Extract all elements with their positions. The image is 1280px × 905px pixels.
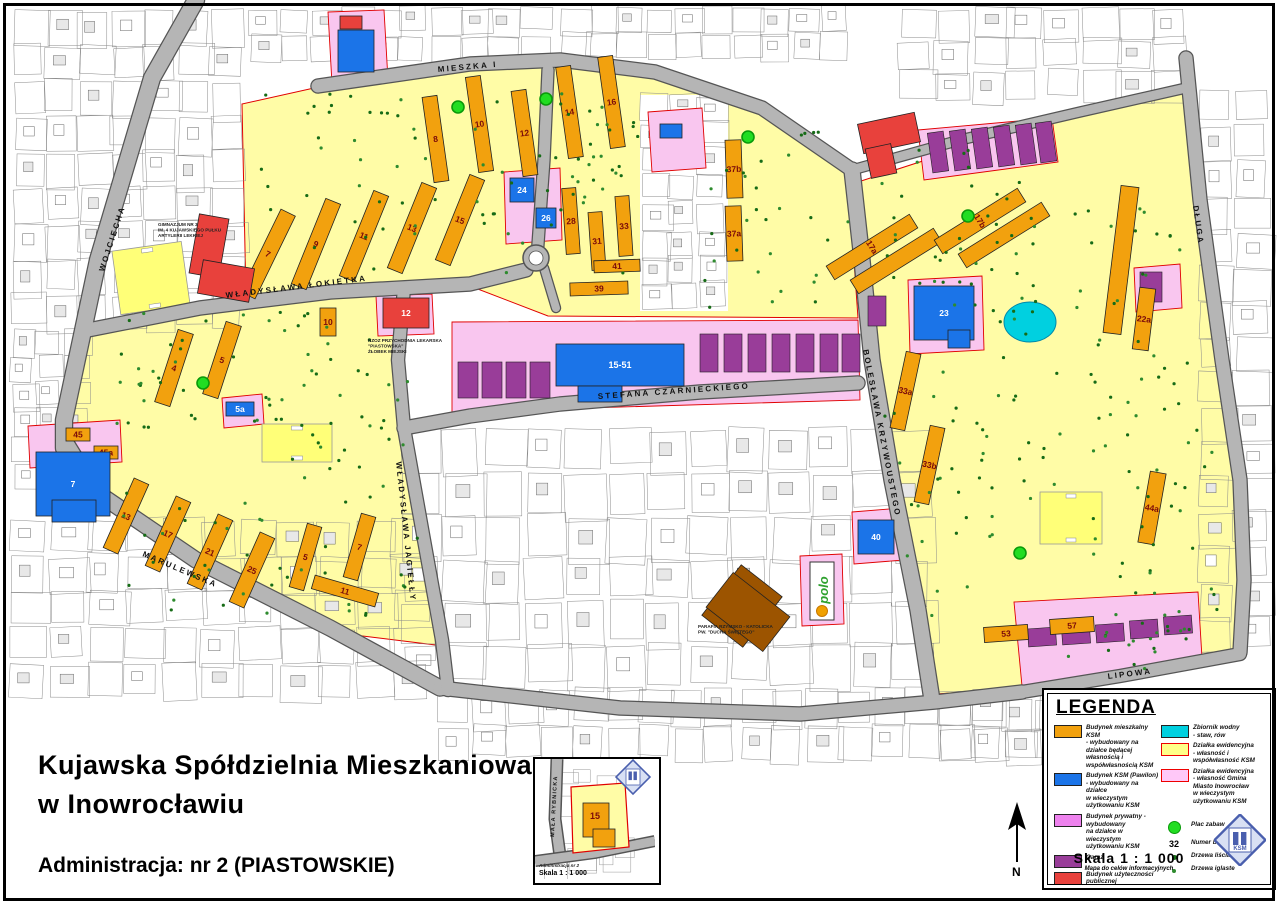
building-number: 22a: [1136, 313, 1152, 325]
tree-dot: [203, 564, 206, 567]
tree-dot: [1127, 643, 1130, 646]
tree-dot: [328, 467, 331, 470]
tree-dot: [493, 212, 496, 215]
tree-dot: [936, 590, 939, 593]
tree-dot: [225, 527, 228, 530]
tree-dot: [242, 313, 245, 316]
building-number: 31: [592, 236, 602, 247]
tree-dot: [1134, 229, 1137, 232]
tree-dot: [1149, 637, 1152, 640]
tree-dot: [329, 358, 332, 361]
tree-dot: [606, 123, 609, 126]
scale-text: Skala 1 : 1 000: [1048, 850, 1210, 866]
tree-dot: [713, 259, 716, 262]
tree-dot: [975, 422, 978, 425]
tree-dot: [600, 106, 603, 109]
tree-dot: [182, 389, 185, 392]
garage-block: [772, 334, 790, 372]
building-number: 28: [566, 216, 576, 227]
tree-dot: [880, 182, 883, 185]
tree-dot: [1128, 470, 1131, 473]
tree-dot: [268, 403, 271, 406]
tree-dot: [178, 507, 181, 510]
tree-dot: [414, 224, 417, 227]
tree-dot: [147, 426, 150, 429]
tree-dot: [319, 445, 322, 448]
tree-dot: [1097, 417, 1100, 420]
tree-dot: [1144, 274, 1147, 277]
tree-dot: [755, 208, 758, 211]
tree-dot: [898, 461, 901, 464]
building-24: 24: [510, 178, 534, 202]
tree-dot: [1055, 372, 1058, 375]
tree-dot: [703, 279, 706, 282]
tree-dot: [787, 154, 790, 157]
garage-block: [1129, 619, 1158, 639]
tree-dot: [957, 491, 960, 494]
tree-dot: [939, 259, 942, 262]
tree-dot: [985, 435, 988, 438]
tree-dot: [183, 519, 186, 522]
tree-dot: [636, 135, 639, 138]
tree-dot: [958, 237, 961, 240]
tree-dot: [127, 421, 130, 424]
tree-dot: [122, 514, 125, 517]
tree-dot: [1067, 655, 1070, 658]
tree-dot: [1092, 517, 1095, 520]
tree-dot: [967, 149, 970, 152]
tree-dot: [416, 537, 419, 540]
tree-dot: [955, 407, 958, 410]
tree-dot: [814, 300, 817, 303]
legend-item: Działka ewidencyjna - własność i współwł…: [1159, 742, 1266, 765]
tree-dot: [970, 184, 973, 187]
building-15-51: 15-51: [556, 344, 684, 386]
tree-dot: [1074, 212, 1077, 215]
tree-dot: [324, 571, 327, 574]
tree-dot: [1092, 553, 1095, 556]
tree-dot: [996, 241, 999, 244]
tree-dot: [991, 533, 994, 536]
tree-dot: [906, 554, 909, 557]
tree-dot: [396, 398, 399, 401]
tree-dot: [151, 370, 154, 373]
tree-dot: [179, 347, 182, 350]
legend-item-label: Budynek prywatny - wybudowany na działce…: [1086, 813, 1159, 851]
tree-dot: [382, 419, 385, 422]
tree-dot: [803, 132, 806, 135]
tree-dot: [401, 201, 404, 204]
building-number: 24: [517, 185, 527, 195]
building-53: 53: [984, 624, 1029, 642]
tree-dot: [306, 112, 309, 115]
tree-dot: [378, 200, 381, 203]
tree-dot: [917, 149, 920, 152]
tree-dot: [510, 181, 513, 184]
tree-dot: [406, 380, 409, 383]
legend-item: Budynek KSM (Pawilon) - wybudowany na dz…: [1052, 772, 1159, 810]
tree-dot: [115, 422, 118, 425]
building-number: 23: [939, 308, 949, 318]
tree-dot: [142, 425, 145, 428]
legend-item-label: Budynek użyteczności publicznej - szkoły…: [1086, 871, 1159, 885]
tree-dot: [592, 155, 595, 158]
tree-dot: [380, 426, 383, 429]
tree-dot: [507, 232, 510, 235]
tree-dot: [815, 274, 818, 277]
garage-block: [748, 334, 766, 372]
building-number: 53: [1001, 628, 1011, 639]
tree-dot: [1191, 547, 1194, 550]
tree-dot: [1097, 343, 1100, 346]
tree-dot: [550, 223, 553, 226]
inset-building-number: 15: [590, 811, 600, 821]
tree-dot: [265, 612, 268, 615]
tree-dot: [328, 111, 331, 114]
tree-dot: [386, 112, 389, 115]
garage-block: [482, 362, 502, 398]
tree-dot: [546, 189, 549, 192]
tree-dot: [769, 252, 772, 255]
tree-dot: [324, 545, 327, 548]
legend-item-label: Zbiornik wodny - staw, rów: [1193, 724, 1240, 739]
tree-dot: [945, 251, 948, 254]
tree-dot: [302, 384, 305, 387]
tree-dot: [592, 179, 595, 182]
garage-block: [530, 362, 550, 398]
tree-dot: [942, 371, 945, 374]
tree-dot: [588, 109, 591, 112]
building-41: 41: [594, 259, 640, 273]
tree-dot: [387, 383, 390, 386]
tree-dot: [978, 476, 981, 479]
legend-item: Budynek użyteczności publicznej - szkoły…: [1052, 871, 1159, 885]
tree-dot: [886, 254, 889, 257]
tree-dot: [344, 500, 347, 503]
garage-block: [724, 334, 742, 372]
ksm-logo: KSM: [1214, 814, 1266, 866]
tree-dot: [1183, 486, 1186, 489]
tree-dot: [1033, 225, 1036, 228]
tree-dot: [481, 213, 484, 216]
legend-item: Zbiornik wodny - staw, rów: [1159, 724, 1266, 739]
tree-dot: [1104, 444, 1107, 447]
legend-item-label: Budynek KSM (Pawilon) - wybudowany na dz…: [1086, 772, 1159, 810]
building-number: 39: [594, 283, 604, 293]
tree-dot: [1179, 509, 1182, 512]
tree-dot: [317, 136, 320, 139]
legend-swatch: [1054, 872, 1082, 885]
tree-dot: [326, 342, 329, 345]
tree-dot: [260, 168, 263, 171]
tree-dot: [399, 98, 402, 101]
tree-dot: [1089, 373, 1092, 376]
tree-dot: [139, 382, 142, 385]
building-number: 12: [519, 127, 530, 138]
tree-dot: [1134, 591, 1137, 594]
playground-marker: [452, 101, 464, 113]
tree-dot: [1184, 637, 1187, 640]
tree-dot: [918, 282, 921, 285]
tree-dot: [1174, 482, 1177, 485]
tree-dot: [170, 608, 173, 611]
tree-dot: [368, 111, 371, 114]
tree-dot: [755, 186, 758, 189]
building: [338, 30, 374, 72]
building-number: 37b: [727, 164, 742, 175]
tree-dot: [930, 614, 933, 617]
tree-dot: [990, 268, 993, 271]
tree-dot: [1155, 468, 1158, 471]
legend-item-label: Budynek mieszkalny KSM - wybudowany na d…: [1086, 724, 1159, 769]
title-block: Kujawska Spółdzielnia Mieszkaniowa w Ino…: [38, 746, 532, 878]
legend-inner: LEGENDA Budynek mieszkalny KSM - wybudow…: [1047, 693, 1271, 885]
tree-dot: [600, 155, 603, 158]
tree-dot: [207, 568, 210, 571]
building-10: 10: [320, 308, 336, 336]
building-26: 26: [536, 208, 556, 228]
tree-dot: [266, 185, 269, 188]
north-arrow: N: [1008, 802, 1026, 879]
legend-swatch: [1161, 725, 1189, 738]
tree-dot: [358, 465, 361, 468]
tree-dot: [632, 121, 635, 124]
tree-dot: [995, 223, 998, 226]
playground-marker: [540, 93, 552, 105]
tree-dot: [412, 128, 415, 131]
tree-dot: [933, 280, 936, 283]
legend-swatch: [1161, 743, 1189, 756]
legend-item: Budynek prywatny - wybudowany na działce…: [1052, 813, 1159, 851]
tree-dot: [932, 395, 935, 398]
tree-dot: [279, 311, 282, 314]
tree-dot: [725, 169, 728, 172]
tree-dot: [1183, 627, 1186, 630]
playground-marker: [742, 131, 754, 143]
tree-dot: [1119, 575, 1122, 578]
sport-field: [112, 241, 190, 314]
tree-dot: [242, 592, 245, 595]
tree-dot: [618, 165, 621, 168]
tree-dot: [1032, 284, 1035, 287]
tree-dot: [1031, 242, 1034, 245]
tree-dot: [1152, 543, 1155, 546]
tree-dot: [300, 424, 303, 427]
tree-dot: [1024, 332, 1027, 335]
building-45: 45: [66, 428, 90, 441]
tree-dot: [414, 136, 417, 139]
tree-dot: [1002, 356, 1005, 359]
building-37b: 37b: [725, 140, 743, 199]
tree-dot: [980, 459, 983, 462]
tree-dot: [275, 418, 278, 421]
tree-dot: [965, 516, 968, 519]
tree-dot: [764, 218, 767, 221]
tree-dot: [1090, 241, 1093, 244]
tree-dot: [1155, 232, 1158, 235]
tree-dot: [328, 93, 331, 96]
tree-dot: [193, 417, 196, 420]
building-5a: 5a: [226, 402, 254, 416]
tree-dot: [1092, 449, 1095, 452]
tree-dot: [1107, 649, 1110, 652]
building-number: 12: [401, 308, 411, 318]
tree-dot: [368, 424, 371, 427]
playground-marker: [1014, 547, 1026, 559]
legend-heading: LEGENDA: [1056, 697, 1264, 719]
tree-dot: [1153, 592, 1156, 595]
tree-dot: [1018, 457, 1021, 460]
tree-dot: [1015, 252, 1018, 255]
building-number: 15-51: [608, 360, 631, 370]
tree-dot: [1187, 441, 1190, 444]
tree-dot: [1027, 441, 1030, 444]
tree-dot: [608, 128, 611, 131]
tree-dot: [601, 187, 604, 190]
tree-dot: [300, 568, 303, 571]
tree-dot: [1132, 639, 1135, 642]
tree-dot: [357, 369, 360, 372]
tree-dot: [1140, 525, 1143, 528]
tree-dot: [1113, 302, 1116, 305]
tree-dot: [403, 585, 406, 588]
tree-dot: [264, 93, 267, 96]
tree-dot: [1109, 413, 1112, 416]
tree-dot: [204, 319, 207, 322]
tree-dot: [1163, 367, 1166, 370]
tree-dot: [1012, 398, 1015, 401]
tree-dot: [846, 220, 849, 223]
tree-dot: [128, 319, 131, 322]
tree-dot: [1012, 310, 1015, 313]
building: [948, 330, 970, 348]
tree-dot: [778, 207, 781, 210]
tree-dot: [142, 312, 145, 315]
city-parcel: [648, 108, 706, 172]
tree-dot: [169, 343, 172, 346]
tree-dot: [973, 303, 976, 306]
tree-dot: [1034, 300, 1037, 303]
tree-dot: [1109, 396, 1112, 399]
legend-scale: Skala 1 : 1 000 Mapa do celów informacyj…: [1048, 850, 1210, 872]
tree-dot: [571, 175, 574, 178]
playground-marker: [197, 377, 209, 389]
inset-caption: Administracja nr 2: [538, 863, 580, 868]
tree-dot: [313, 246, 316, 249]
tree-dot: [567, 113, 570, 116]
tree-dot: [1114, 613, 1117, 616]
building-number: 16: [606, 96, 617, 107]
tree-dot: [1020, 297, 1023, 300]
tree-dot: [951, 419, 954, 422]
tree-dot: [1195, 429, 1198, 432]
tree-dot: [1137, 340, 1140, 343]
tree-dot: [966, 585, 969, 588]
title-line1: Kujawska Spółdzielnia Mieszkaniowa: [38, 746, 532, 785]
tree-dot: [817, 131, 820, 134]
tree-dot: [892, 276, 895, 279]
tree-dot: [232, 355, 235, 358]
building: [706, 572, 790, 651]
tree-dot: [190, 414, 193, 417]
tree-dot: [366, 373, 369, 376]
tree-dot: [710, 232, 713, 235]
tree-dot: [892, 216, 895, 219]
title-line2: w Inowrocławiu: [38, 785, 532, 824]
polo-market: polo: [810, 562, 834, 620]
legend-swatch: [1054, 773, 1082, 786]
tree-dot: [760, 160, 763, 163]
tree-dot: [813, 281, 816, 284]
tree-dot: [1105, 631, 1108, 634]
tree-dot: [1010, 234, 1013, 237]
playground-icon: [1168, 821, 1181, 834]
tree-dot: [303, 314, 306, 317]
building-number: 40: [871, 532, 881, 542]
tree-dot: [283, 329, 286, 332]
tree-dot: [360, 415, 363, 418]
building-number: 37a: [727, 228, 742, 238]
tree-dot: [611, 168, 614, 171]
tree-dot: [1140, 378, 1143, 381]
building-37a: 37a: [725, 206, 743, 262]
legend-swatch: [1054, 814, 1082, 827]
tree-dot: [311, 433, 314, 436]
tree-dot: [621, 271, 624, 274]
tree-dot: [959, 247, 962, 250]
tree-dot: [270, 583, 273, 586]
tree-dot: [967, 166, 970, 169]
tree-dot: [1110, 225, 1113, 228]
tree-dot: [143, 534, 146, 537]
building-number: 41: [612, 261, 622, 271]
tree-dot: [1133, 663, 1136, 666]
tree-dot: [306, 353, 309, 356]
tree-dot: [1152, 647, 1155, 650]
tree-dot: [577, 158, 580, 161]
tree-dot: [286, 576, 289, 579]
tree-dot: [982, 452, 985, 455]
building-number-sample: 32: [1161, 839, 1187, 849]
building-number: 14: [564, 106, 575, 117]
tree-dot: [559, 208, 562, 211]
tree-dot: [222, 604, 225, 607]
legend-item: Działka ewidencyjna - własność Gmina Mia…: [1159, 768, 1266, 806]
tree-dot: [278, 567, 281, 570]
tree-dot: [572, 193, 575, 196]
tree-dot: [243, 502, 246, 505]
garage-block: [506, 362, 526, 398]
tree-dot: [981, 428, 984, 431]
tree-dot: [1058, 432, 1061, 435]
tree-dot: [1166, 629, 1169, 632]
tree-dot: [174, 360, 177, 363]
garage-block: [458, 362, 478, 398]
tree-dot: [620, 174, 623, 177]
tree-dot: [1126, 401, 1129, 404]
tree-dot: [953, 303, 956, 306]
tree-dot: [172, 599, 175, 602]
svg-text:KSM: KSM: [1233, 846, 1246, 852]
tree-dot: [1079, 289, 1082, 292]
inset-map-canvas: 15MAŁA RYBNICKAAdministracja nr 2Skala 1…: [535, 759, 655, 879]
garage-block: [842, 334, 860, 372]
tree-dot: [955, 532, 958, 535]
polo-label: polo: [816, 576, 831, 604]
tree-dot: [894, 233, 897, 236]
title-line3: Administracja: nr 2 (PIASTOWSKIE): [38, 854, 532, 878]
sport-field: [262, 424, 332, 462]
